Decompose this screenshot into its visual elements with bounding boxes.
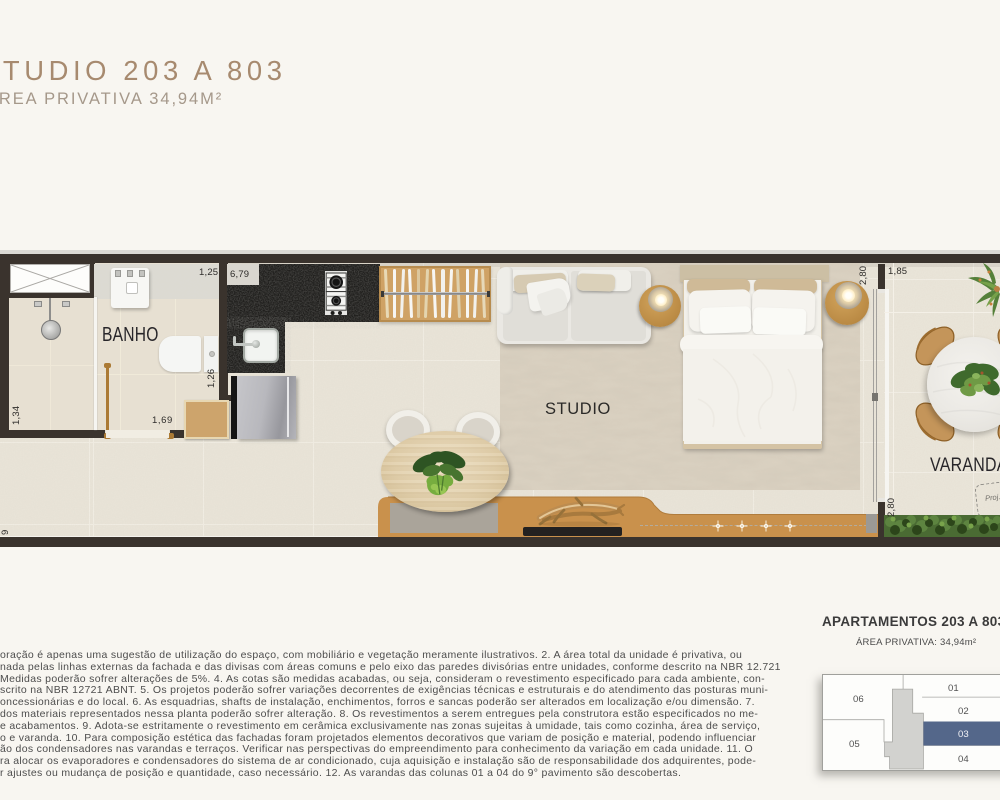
svg-text:04: 04 — [958, 754, 969, 765]
svg-text:05: 05 — [849, 739, 860, 750]
svg-text:06: 06 — [853, 694, 864, 705]
svg-text:01: 01 — [948, 683, 959, 694]
svg-text:02: 02 — [958, 706, 969, 717]
svg-text:03: 03 — [958, 729, 969, 740]
